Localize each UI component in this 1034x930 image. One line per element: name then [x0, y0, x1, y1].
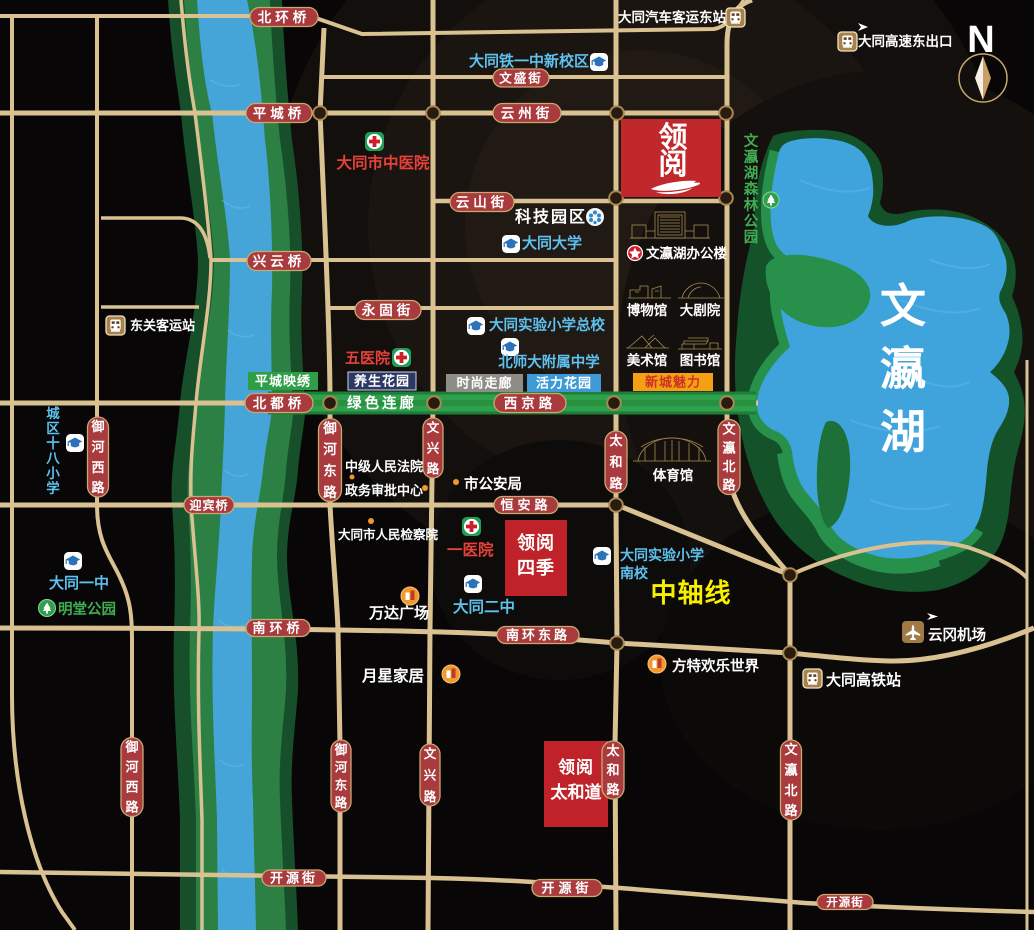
svg-text:河: 河 — [323, 441, 337, 457]
svg-text:平城桥: 平城桥 — [253, 105, 306, 121]
svg-text:绿色连廊: 绿色连廊 — [347, 394, 417, 412]
svg-text:大同二中: 大同二中 — [453, 597, 515, 616]
svg-text:时尚走廊: 时尚走廊 — [456, 376, 512, 391]
svg-text:活力花园: 活力花园 — [536, 376, 592, 391]
svg-text:东关客运站: 东关客运站 — [130, 318, 195, 333]
svg-text:东: 东 — [323, 463, 337, 479]
svg-text:东: 东 — [335, 777, 348, 792]
svg-text:和: 和 — [606, 763, 619, 778]
svg-text:太和道: 太和道 — [551, 782, 602, 802]
svg-text:文: 文 — [784, 742, 798, 757]
svg-text:小: 小 — [46, 466, 60, 481]
svg-text:瀛: 瀛 — [880, 344, 926, 395]
svg-text:文盛街: 文盛街 — [499, 71, 543, 86]
svg-text:文: 文 — [424, 746, 437, 761]
svg-text:湖: 湖 — [880, 407, 926, 458]
svg-text:路: 路 — [424, 789, 437, 804]
svg-text:大同大学: 大同大学 — [522, 234, 582, 252]
svg-text:文: 文 — [722, 422, 736, 437]
svg-text:太: 太 — [605, 743, 620, 758]
svg-text:开源街: 开源街 — [826, 895, 864, 909]
svg-text:西京路: 西京路 — [504, 395, 557, 411]
svg-text:路: 路 — [125, 800, 139, 815]
svg-text:文瀛湖办公楼: 文瀛湖办公楼 — [646, 245, 727, 261]
svg-text:云山街: 云山街 — [456, 194, 509, 210]
svg-text:南校: 南校 — [620, 565, 649, 581]
svg-text:大同铁一中新校区: 大同铁一中新校区 — [469, 52, 589, 70]
svg-text:大同实验小学: 大同实验小学 — [620, 547, 704, 563]
svg-text:政务审批中心: 政务审批中心 — [345, 483, 423, 498]
svg-text:万达广场: 万达广场 — [368, 604, 429, 622]
svg-text:太: 太 — [608, 433, 623, 448]
svg-text:领阅: 领阅 — [517, 532, 555, 553]
svg-text:领阅: 领阅 — [558, 757, 594, 777]
svg-text:城: 城 — [46, 405, 60, 421]
svg-text:兴云桥: 兴云桥 — [253, 253, 306, 269]
svg-text:八: 八 — [45, 451, 60, 466]
svg-text:大同市中医院: 大同市中医院 — [336, 153, 430, 172]
svg-text:中轴线: 中轴线 — [650, 578, 731, 608]
svg-text:市公安局: 市公安局 — [464, 475, 522, 493]
svg-text:月星家居: 月星家居 — [361, 666, 424, 685]
svg-text:五医院: 五医院 — [345, 349, 390, 367]
svg-text:和: 和 — [609, 455, 622, 470]
svg-text:森: 森 — [744, 180, 759, 198]
svg-text:大剧院: 大剧院 — [680, 302, 721, 318]
svg-text:西: 西 — [91, 460, 104, 475]
svg-text:御: 御 — [322, 420, 337, 436]
svg-text:河: 河 — [335, 760, 348, 775]
svg-text:北环桥: 北环桥 — [258, 9, 311, 25]
svg-text:云州街: 云州街 — [501, 105, 554, 121]
svg-text:南环东路: 南环东路 — [506, 628, 570, 643]
svg-text:瀛: 瀛 — [722, 440, 735, 455]
svg-text:明堂公园: 明堂公园 — [58, 600, 116, 618]
svg-text:区: 区 — [46, 421, 60, 436]
svg-text:体育馆: 体育馆 — [653, 467, 694, 483]
svg-text:河: 河 — [125, 760, 138, 775]
svg-text:路: 路 — [91, 480, 105, 495]
svg-text:北都桥: 北都桥 — [253, 395, 306, 411]
svg-text:林: 林 — [744, 196, 759, 214]
svg-text:御: 御 — [334, 742, 348, 757]
svg-text:大同汽车客运东站: 大同汽车客运东站 — [618, 9, 726, 25]
svg-text:御: 御 — [90, 419, 104, 434]
svg-text:养生花园: 养生花园 — [353, 374, 410, 389]
svg-text:御: 御 — [124, 740, 138, 755]
svg-text:公: 公 — [744, 213, 759, 230]
svg-text:文: 文 — [744, 132, 759, 150]
svg-text:河: 河 — [91, 440, 104, 455]
svg-text:一医院: 一医院 — [447, 540, 494, 559]
svg-text:新城魅力: 新城魅力 — [645, 375, 701, 390]
svg-text:路: 路 — [609, 476, 623, 491]
svg-text:开源街: 开源街 — [270, 871, 318, 886]
svg-text:湖: 湖 — [744, 165, 759, 182]
svg-text:北: 北 — [722, 459, 735, 474]
svg-text:十: 十 — [46, 435, 60, 451]
svg-text:路: 路 — [335, 795, 348, 810]
svg-text:路: 路 — [323, 484, 337, 500]
svg-text:文: 文 — [427, 420, 440, 435]
svg-text:方特欢乐世界: 方特欢乐世界 — [672, 657, 759, 675]
svg-text:平城映绣: 平城映绣 — [255, 374, 311, 389]
svg-text:博物馆: 博物馆 — [627, 302, 668, 318]
svg-text:云冈机场: 云冈机场 — [928, 626, 986, 644]
svg-text:图书馆: 图书馆 — [680, 352, 721, 368]
svg-text:路: 路 — [722, 478, 736, 493]
svg-text:大同高铁站: 大同高铁站 — [826, 671, 901, 689]
svg-text:文: 文 — [880, 281, 926, 332]
svg-text:大同一中: 大同一中 — [49, 574, 109, 592]
svg-text:北: 北 — [784, 783, 797, 798]
svg-text:科技园区: 科技园区 — [515, 207, 587, 226]
svg-text:瀛: 瀛 — [744, 148, 759, 166]
svg-text:瀛: 瀛 — [784, 763, 797, 778]
svg-text:西: 西 — [125, 780, 138, 795]
svg-text:路: 路 — [606, 782, 620, 797]
svg-text:恒安路: 恒安路 — [500, 498, 551, 513]
svg-text:路: 路 — [784, 803, 798, 818]
svg-text:中级人民法院: 中级人民法院 — [345, 459, 423, 474]
svg-text:路: 路 — [427, 461, 440, 476]
svg-text:迎宾桥: 迎宾桥 — [189, 497, 228, 512]
svg-text:阅: 阅 — [658, 148, 687, 181]
svg-text:北师大附属中学: 北师大附属中学 — [498, 353, 600, 371]
svg-text:兴: 兴 — [424, 768, 437, 783]
svg-text:开源街: 开源街 — [541, 881, 592, 896]
svg-text:南环桥: 南环桥 — [252, 621, 303, 636]
svg-text:园: 园 — [744, 229, 759, 246]
svg-text:大同高速东出口: 大同高速东出口 — [858, 33, 953, 49]
svg-text:大同市人民检察院: 大同市人民检察院 — [338, 527, 439, 542]
svg-text:兴: 兴 — [427, 441, 440, 456]
svg-text:大同实验小学总校: 大同实验小学总校 — [489, 316, 605, 334]
svg-text:四季: 四季 — [517, 558, 555, 578]
svg-text:永固街: 永固街 — [362, 302, 415, 318]
svg-text:美术馆: 美术馆 — [627, 352, 668, 368]
svg-text:学: 学 — [46, 480, 60, 496]
